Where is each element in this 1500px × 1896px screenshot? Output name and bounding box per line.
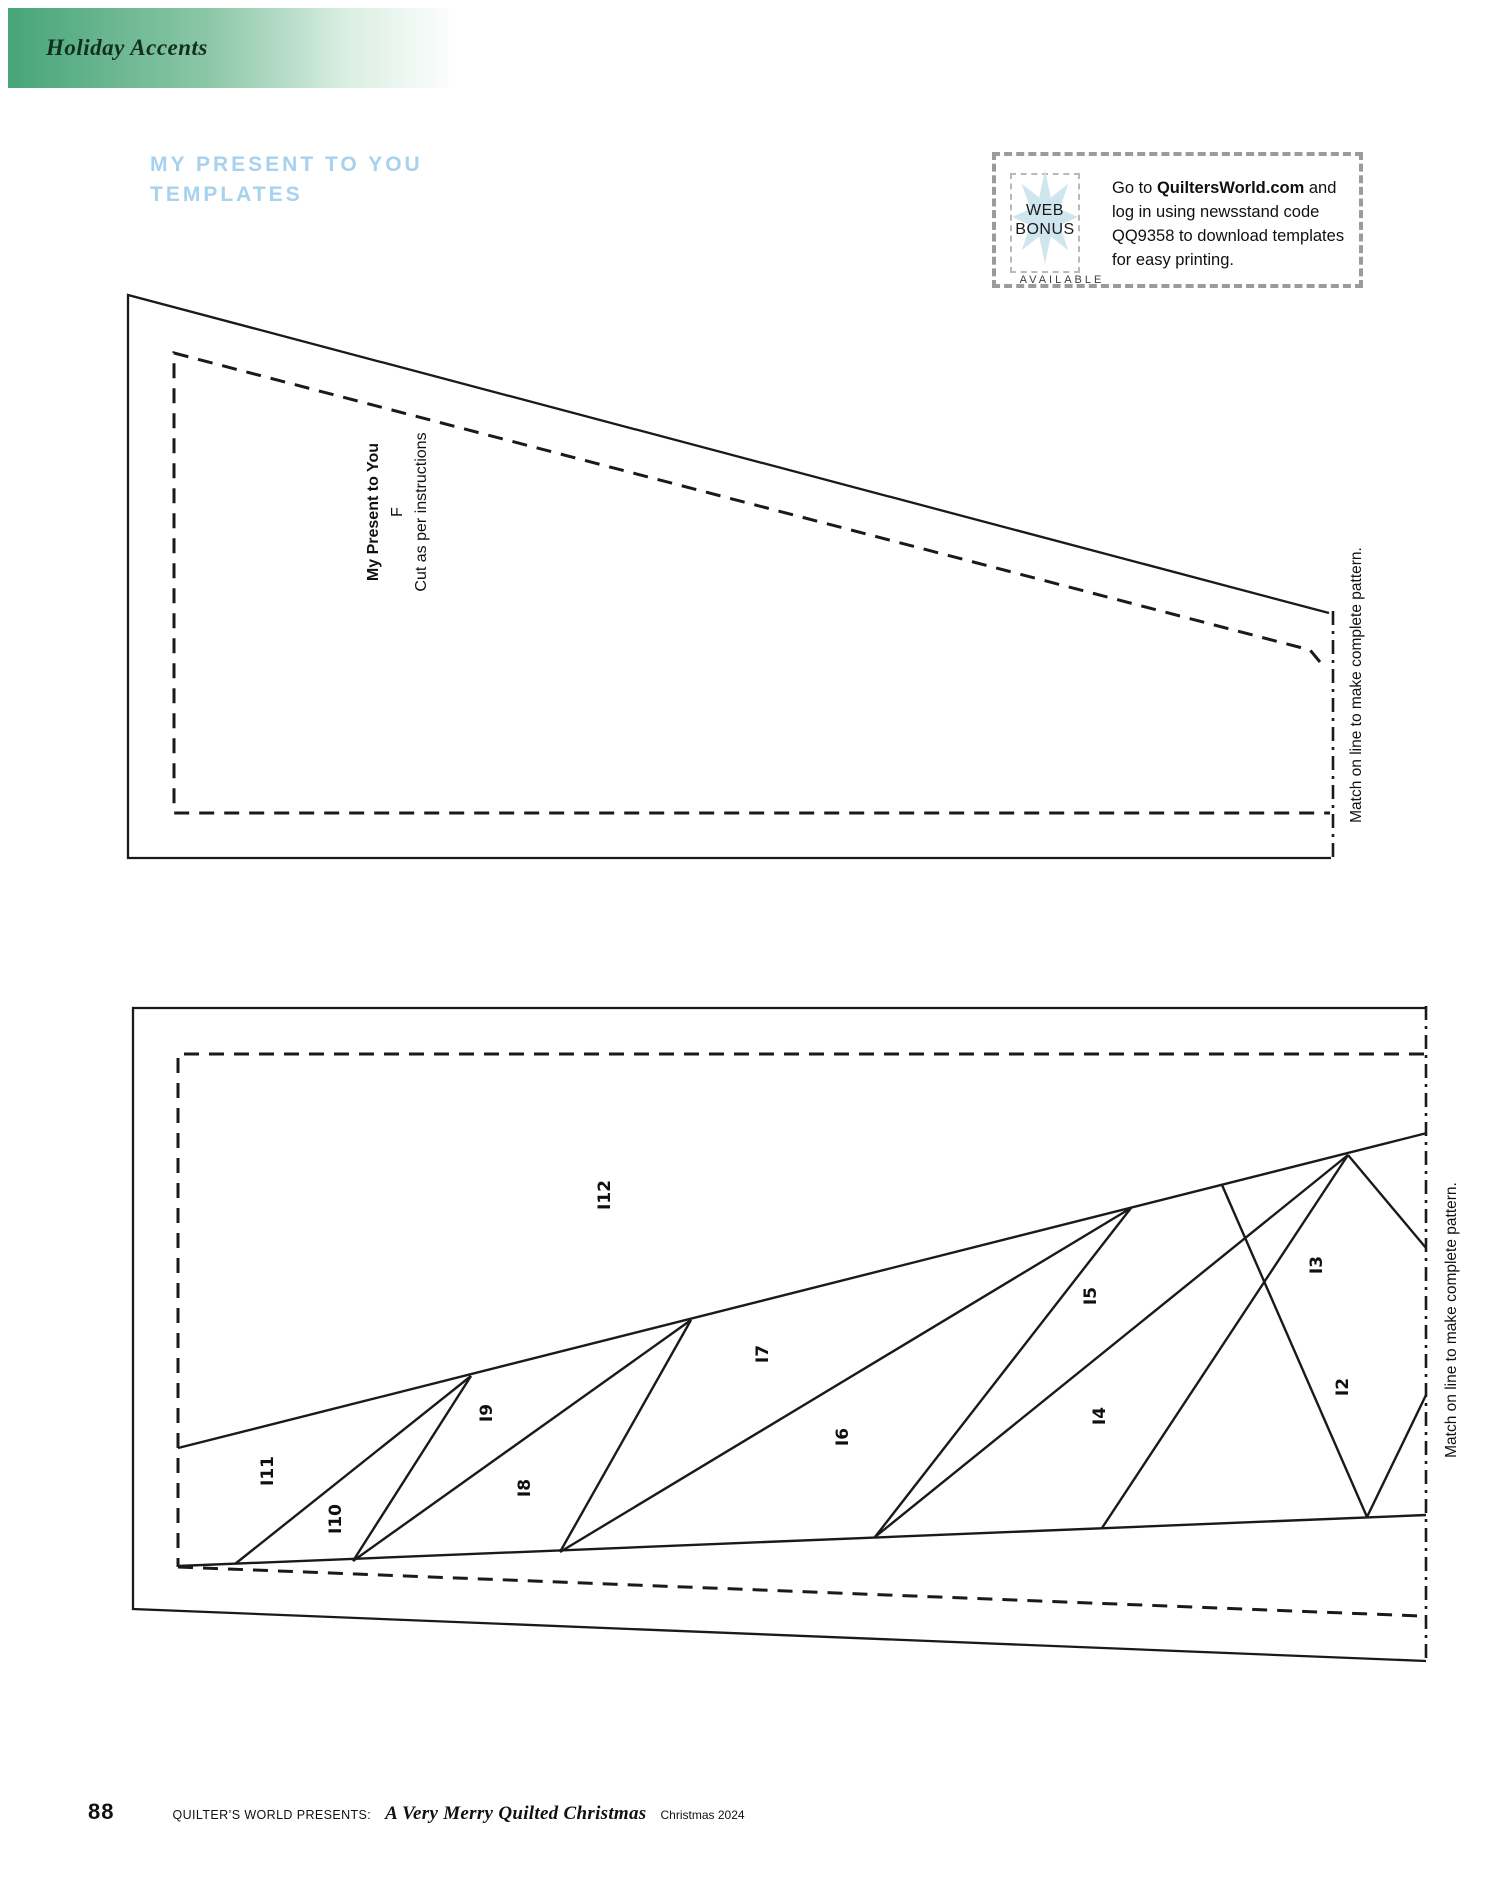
piece-label-I4: I4 <box>1090 1407 1110 1425</box>
piece-label-I10: I10 <box>326 1504 346 1534</box>
top-template-cut-note: Cut as per instructions <box>410 432 434 591</box>
bottom-template-seam-line <box>178 1054 1424 1567</box>
piece-label-I3: I3 <box>1307 1256 1327 1274</box>
piece-label-I5: I5 <box>1081 1287 1101 1305</box>
top-template-name: My Present to You <box>362 432 386 591</box>
piece-label-I9: I9 <box>477 1404 497 1422</box>
piece-label-I12: I12 <box>595 1180 615 1210</box>
top-template-seam-line <box>174 353 1330 813</box>
bottom-template-match-caption: Match on line to make complete pattern. <box>1443 1182 1461 1458</box>
piece-label-I8: I8 <box>515 1479 535 1497</box>
top-template-outline <box>128 295 1331 858</box>
footer-presents: QUILTER’S WORLD PRESENTS: <box>172 1808 371 1822</box>
piece-label-I2: I2 <box>1333 1378 1353 1396</box>
bottom-template-outline <box>133 1008 1426 1661</box>
top-template-label: My Present to You F Cut as per instructi… <box>362 432 434 591</box>
top-template-letter: F <box>386 432 410 591</box>
page-footer: 88 QUILTER’S WORLD PRESENTS: A Very Merr… <box>88 1799 745 1825</box>
piece-label-I11: I11 <box>258 1456 278 1486</box>
strip-top-diagonal <box>178 1133 1427 1448</box>
piece-label-I7: I7 <box>753 1345 773 1363</box>
page-number: 88 <box>88 1799 114 1825</box>
piece-label-I6: I6 <box>833 1428 853 1446</box>
top-template-match-caption: Match on line to make complete pattern. <box>1348 547 1366 823</box>
piecing-lines <box>235 1155 1426 1564</box>
footer-book-title: A Very Merry Quilted Christmas <box>385 1803 646 1825</box>
template-linework: I2 I3 I4 I5 I6 I7 I8 I9 I10 I11 I12 <box>0 0 1500 1896</box>
footer-edition: Christmas 2024 <box>661 1808 745 1822</box>
piece-labels: I2 I3 I4 I5 I6 I7 I8 I9 I10 I11 I12 <box>258 1180 1353 1534</box>
magazine-page: Holiday Accents MY PRESENT TO YOU TEMPLA… <box>0 0 1500 1896</box>
bottom-template-seam-line-bottom <box>178 1567 1420 1616</box>
